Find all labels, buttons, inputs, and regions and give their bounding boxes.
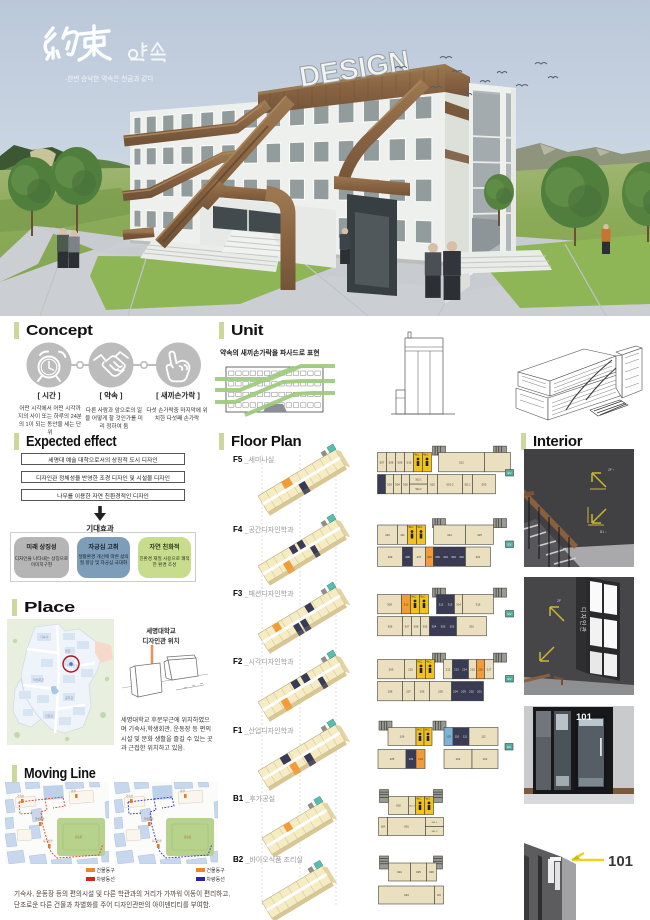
svg-text:405: 405 — [435, 555, 440, 559]
svg-text:215: 215 — [470, 667, 475, 671]
svg-text:W.C: W.C — [421, 595, 426, 599]
svg-text:EV: EV — [507, 677, 511, 681]
svg-text:101: 101 — [608, 853, 633, 870]
svg-text:W.C: W.C — [426, 797, 431, 801]
svg-text:111: 111 — [463, 735, 468, 739]
svg-text:411: 411 — [400, 533, 405, 537]
svg-text:203: 203 — [461, 689, 466, 693]
svg-text:[ 새끼손가락 ]: [ 새끼손가락 ] — [156, 390, 200, 400]
svg-text:001: 001 — [404, 825, 409, 829]
svg-text:EV: EV — [507, 612, 511, 616]
svg-text:2F ↑: 2F ↑ — [608, 468, 615, 472]
svg-text:505: 505 — [403, 482, 408, 486]
svg-text:316: 316 — [476, 602, 481, 606]
svg-text:202: 202 — [469, 689, 474, 693]
svg-text:402: 402 — [459, 555, 464, 559]
svg-text:206: 206 — [420, 689, 425, 693]
svg-text:023: 023 — [404, 893, 409, 897]
svg-text:500: 500 — [482, 482, 487, 486]
svg-text:510: 510 — [407, 460, 412, 464]
svg-text:214: 214 — [462, 667, 467, 671]
svg-text:026: 026 — [429, 870, 434, 874]
svg-text:409: 409 — [388, 555, 393, 559]
svg-text:103: 103 — [418, 757, 423, 761]
svg-text:EV: EV — [507, 745, 511, 749]
svg-text:507: 507 — [380, 460, 385, 464]
svg-text:408: 408 — [405, 555, 410, 559]
svg-text:509: 509 — [398, 460, 403, 464]
svg-text:W.C: W.C — [417, 728, 422, 732]
svg-text:312: 312 — [439, 602, 444, 606]
svg-text:314: 314 — [456, 602, 461, 606]
svg-text:401: 401 — [476, 555, 481, 559]
svg-text:002-1: 002-1 — [409, 806, 415, 808]
svg-text:104: 104 — [409, 757, 414, 761]
svg-text:216: 216 — [478, 667, 483, 671]
svg-text:503: 503 — [387, 482, 392, 486]
svg-text:404: 404 — [443, 555, 448, 559]
svg-text:-한번 승낙한 약속은 천금과 같다: -한번 승낙한 약속은 천금과 같다 — [65, 74, 153, 83]
svg-text:[ 시간 ]: [ 시간 ] — [38, 390, 61, 400]
svg-text:301: 301 — [469, 624, 474, 628]
svg-text:302: 302 — [450, 624, 455, 628]
svg-text:112: 112 — [481, 735, 486, 739]
svg-text:[ 약속 ]: [ 약속 ] — [100, 390, 123, 400]
svg-text:406: 406 — [427, 555, 432, 559]
svg-text:B1 ↓: B1 ↓ — [600, 530, 607, 534]
svg-text:001-2: 001-2 — [432, 831, 438, 833]
svg-text:205: 205 — [438, 689, 443, 693]
svg-text:109: 109 — [446, 735, 451, 739]
svg-text:213: 213 — [454, 667, 459, 671]
svg-text:504: 504 — [395, 482, 400, 486]
svg-text:414: 414 — [447, 533, 452, 537]
svg-text:501-1: 501-1 — [464, 483, 471, 486]
svg-text:501-2: 501-2 — [446, 482, 454, 486]
svg-text:210: 210 — [408, 667, 413, 671]
svg-text:004: 004 — [381, 826, 386, 829]
svg-text:304: 304 — [432, 624, 437, 628]
svg-text:025: 025 — [416, 870, 421, 874]
svg-text:303: 303 — [441, 624, 446, 628]
svg-text:410: 410 — [385, 533, 390, 537]
svg-text:403: 403 — [451, 555, 456, 559]
svg-text:W.C: W.C — [418, 525, 423, 529]
svg-text:502: 502 — [430, 482, 435, 486]
svg-text:201: 201 — [477, 689, 482, 693]
svg-text:502-1: 502-1 — [415, 478, 422, 481]
svg-text:W.C: W.C — [424, 453, 429, 457]
svg-text:305: 305 — [423, 624, 428, 628]
svg-text:105: 105 — [390, 757, 395, 761]
svg-text:208: 208 — [388, 689, 393, 693]
svg-text:313: 313 — [448, 602, 453, 606]
svg-text:W.C: W.C — [418, 660, 423, 664]
svg-text:502-2: 502-2 — [415, 488, 422, 491]
svg-text:508: 508 — [389, 460, 394, 464]
svg-text:207: 207 — [406, 689, 411, 693]
svg-text:021: 021 — [437, 894, 442, 897]
svg-text:212: 212 — [446, 667, 451, 671]
svg-text:512: 512 — [459, 460, 464, 464]
svg-text:101: 101 — [483, 757, 488, 761]
svg-text:EV: EV — [507, 542, 511, 546]
svg-text:W.C: W.C — [427, 660, 432, 664]
svg-text:110: 110 — [455, 735, 460, 739]
svg-text:306: 306 — [388, 624, 393, 628]
svg-text:310: 310 — [404, 602, 409, 606]
svg-text:415: 415 — [477, 533, 482, 537]
svg-text:디자인관: 디자인관 — [579, 607, 587, 633]
svg-text:106: 106 — [400, 735, 405, 739]
svg-text:W.C: W.C — [417, 797, 422, 801]
svg-text:307: 307 — [405, 624, 410, 628]
svg-text:407: 407 — [417, 555, 422, 559]
svg-text:W.C: W.C — [415, 453, 420, 457]
svg-text:W.C: W.C — [409, 525, 414, 529]
svg-text:102: 102 — [456, 757, 461, 761]
svg-text:209: 209 — [389, 667, 394, 671]
svg-text:217: 217 — [487, 667, 492, 671]
svg-text:EV: EV — [507, 471, 511, 475]
svg-text:002: 002 — [396, 804, 401, 808]
svg-text:308: 308 — [414, 624, 419, 628]
svg-text:W.C: W.C — [425, 728, 430, 732]
svg-text:309: 309 — [387, 602, 392, 606]
svg-text:024: 024 — [397, 870, 402, 874]
svg-text:204: 204 — [453, 689, 458, 693]
svg-text:101: 101 — [576, 712, 593, 723]
svg-text:001-1: 001-1 — [432, 822, 438, 824]
svg-text:W.C: W.C — [412, 595, 417, 599]
